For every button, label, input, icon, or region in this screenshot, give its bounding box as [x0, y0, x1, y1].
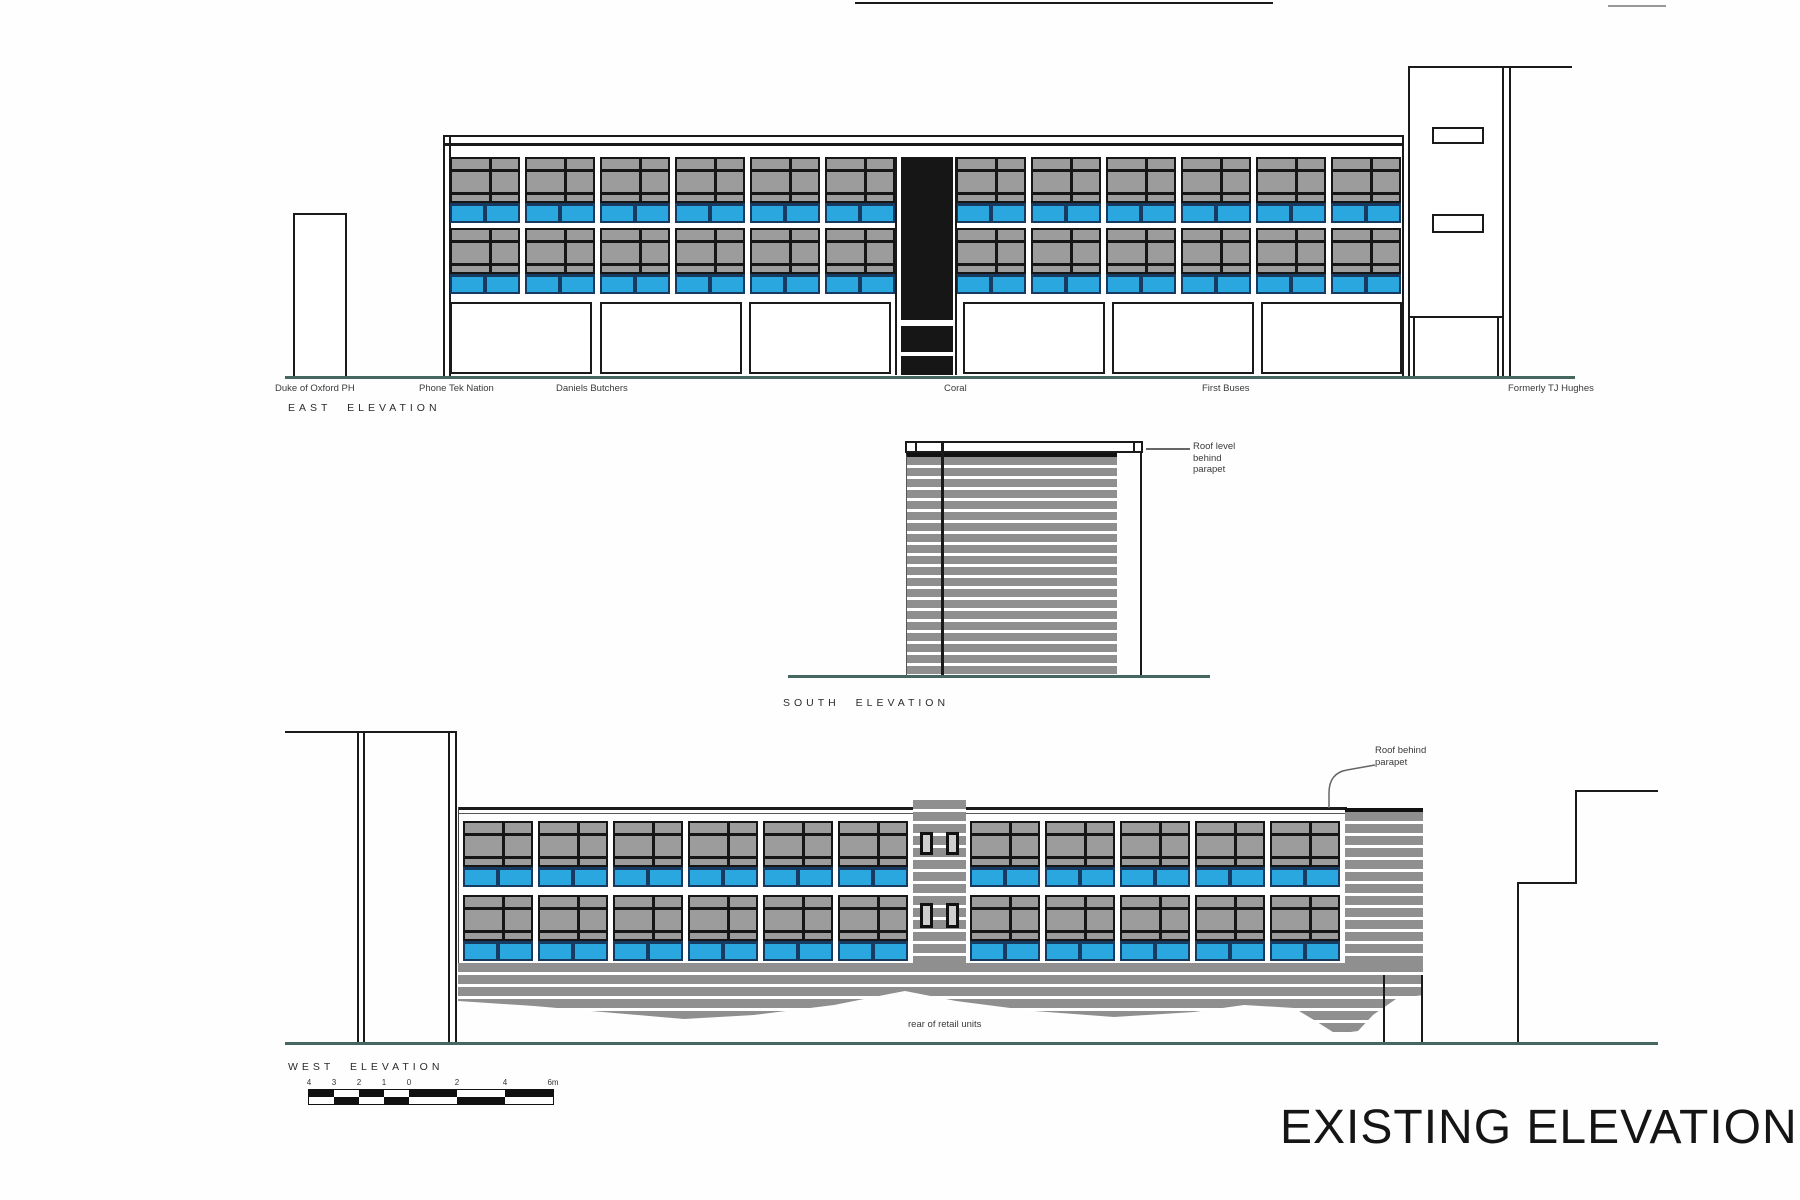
spandrel-pane: [677, 277, 708, 292]
glazing-pane: [840, 859, 877, 865]
east-facade: [443, 135, 1404, 377]
window-bay: [463, 821, 533, 887]
glazing-pane: [1162, 910, 1188, 930]
glazing-pane: [1162, 933, 1188, 939]
glazing-pane: [527, 243, 564, 263]
spandrel-panel-pair: [688, 941, 758, 961]
glazing-pane: [765, 823, 802, 833]
spandrel-panel-pair: [763, 867, 833, 887]
spandrel-pane: [958, 277, 989, 292]
glazing-pane: [920, 191, 934, 220]
glazing-pane: [1312, 823, 1338, 833]
glazing-pane: [1148, 172, 1174, 192]
glazing-pane: [1108, 159, 1145, 169]
glazing-pane: [752, 266, 789, 272]
spandrel-pane: [1307, 870, 1338, 885]
glazing-pane: [752, 243, 789, 263]
scale-bar-segment: [309, 1097, 334, 1104]
window-bay: [688, 821, 758, 887]
tower-base-edge: [1497, 316, 1499, 376]
shopfront-bay: [963, 302, 1105, 374]
glazing-pane: [1237, 823, 1263, 833]
window-bay: [970, 821, 1040, 887]
coping-end-tick: [1133, 443, 1135, 451]
spandrel-pane: [602, 206, 633, 221]
glazing-pane: [717, 159, 743, 169]
glazing-pane: [1237, 933, 1263, 939]
glazing-pane: [1237, 836, 1263, 856]
glazing-pane: [642, 230, 668, 240]
glazing-pane: [690, 823, 727, 833]
window-bay: [763, 895, 833, 961]
spandrel-panel-pair: [463, 867, 533, 887]
spandrel-pane: [840, 944, 871, 959]
west-parapet-inner-line: [458, 813, 1345, 814]
glazing-pane: [1298, 243, 1324, 263]
glazing-pane: [1087, 910, 1113, 930]
glazing-pane: [1012, 910, 1038, 930]
spandrel-pane: [800, 944, 831, 959]
spandrel-pane: [765, 944, 796, 959]
glazing-pane: [1183, 159, 1220, 169]
spandrel-pane: [765, 870, 796, 885]
window-glazing: [825, 228, 895, 274]
glazing-pane: [717, 195, 743, 201]
glazing-pane: [1073, 243, 1099, 263]
glazing-pane: [937, 224, 951, 253]
west-left-wall-line: [448, 731, 450, 1042]
spandrel-pane: [958, 206, 989, 221]
glazing-pane: [1373, 172, 1399, 192]
sheet-edge-artifact: [855, 2, 1273, 4]
glazing-pane: [840, 933, 877, 939]
window-bay: [463, 895, 533, 961]
spandrel-pane: [1183, 277, 1214, 292]
east-lower-window-row-right: [956, 228, 1401, 294]
glazing-pane: [765, 897, 802, 907]
glazing-pane: [677, 172, 714, 192]
glazing-pane: [1258, 243, 1295, 263]
glazing-pane: [1122, 859, 1159, 865]
scale-bar-tick-label: 2: [357, 1078, 361, 1087]
window-glazing: [825, 157, 895, 203]
spandrel-pane: [827, 206, 858, 221]
glazing-pane: [1237, 897, 1263, 907]
glazing-pane: [805, 933, 831, 939]
spandrel-pane: [1143, 277, 1174, 292]
spandrel-panel-pair: [838, 941, 908, 961]
window-glazing: [1045, 821, 1115, 867]
window-bay: [1181, 228, 1251, 294]
spandrel-pane: [1258, 277, 1289, 292]
spandrel-pane: [527, 277, 558, 292]
glazing-pane: [998, 230, 1024, 240]
glazing-pane: [1033, 266, 1070, 272]
spandrel-pane: [862, 206, 893, 221]
west-upper-window-row-left: [463, 821, 908, 887]
window-bay: [750, 228, 820, 294]
tower-base-edge: [1413, 316, 1415, 376]
window-bay: [1270, 895, 1340, 961]
window-bay: [613, 821, 683, 887]
window-glazing: [613, 821, 683, 867]
scale-bar-segment: [359, 1097, 384, 1104]
glazing-pane: [655, 910, 681, 930]
glazing-pane: [1162, 897, 1188, 907]
spandrel-panel-pair: [1270, 867, 1340, 887]
glazing-pane: [1087, 859, 1113, 865]
glazing-pane: [602, 159, 639, 169]
glazing-pane: [505, 897, 531, 907]
spandrel-panel-pair: [1120, 941, 1190, 961]
glazing-pane: [1272, 897, 1309, 907]
glazing-pane: [840, 836, 877, 856]
spandrel-pane: [1068, 277, 1099, 292]
glazing-pane: [867, 230, 893, 240]
glazing-pane: [792, 195, 818, 201]
louvre-tower-support-line: [1421, 975, 1423, 1043]
window-glazing: [538, 821, 608, 867]
glazing-pane: [958, 159, 995, 169]
glazing-pane: [1033, 159, 1070, 169]
glazing-pane: [920, 159, 934, 188]
window-bay: [525, 157, 595, 223]
glazing-pane: [1047, 823, 1084, 833]
glazing-pane: [677, 195, 714, 201]
glazing-pane: [1108, 243, 1145, 263]
glazing-pane: [1298, 195, 1324, 201]
glazing-pane: [1108, 266, 1145, 272]
spandrel-pane: [862, 277, 893, 292]
scale-bar-segment: [409, 1097, 457, 1104]
door-pane: [903, 328, 917, 373]
south-annotation: Roof level behind parapet: [1193, 441, 1263, 476]
east-unit-label: First Buses: [1202, 383, 1250, 394]
tj-hughes-tower: [1408, 66, 1504, 378]
window-bay: [450, 228, 520, 294]
spandrel-pane: [452, 206, 483, 221]
glazing-pane: [602, 195, 639, 201]
window-glazing: [675, 228, 745, 274]
glazing-pane: [615, 859, 652, 865]
glazing-pane: [567, 243, 593, 263]
glazing-pane: [642, 159, 668, 169]
glazing-pane: [527, 230, 564, 240]
glazing-pane: [880, 823, 906, 833]
glazing-pane: [730, 910, 756, 930]
spandrel-pane: [650, 944, 681, 959]
west-left-wall-line: [363, 731, 365, 1042]
spandrel-pane: [972, 944, 1003, 959]
window-bay: [838, 895, 908, 961]
glazing-pane: [1333, 159, 1370, 169]
window-glazing: [1331, 157, 1401, 203]
glazing-pane: [1108, 172, 1145, 192]
spandrel-pane: [1082, 944, 1113, 959]
glazing-pane: [1047, 897, 1084, 907]
spandrel-pane: [1007, 870, 1038, 885]
scale-bar-tick-label: 3: [332, 1078, 336, 1087]
spandrel-panel-pair: [1045, 867, 1115, 887]
glazing-pane: [903, 256, 917, 285]
east-parapet-line: [445, 143, 1402, 146]
spandrel-pane: [1218, 206, 1249, 221]
glazing-pane: [580, 836, 606, 856]
glazing-pane: [1333, 195, 1370, 201]
glazing-pane: [1258, 230, 1295, 240]
glazing-pane: [1272, 836, 1309, 856]
glazing-pane: [1373, 159, 1399, 169]
glazing-pane: [527, 172, 564, 192]
glazing-pane: [527, 159, 564, 169]
spandrel-pane: [993, 277, 1024, 292]
adjacent-building-outline-east-left: [293, 213, 347, 377]
core-window: [946, 903, 959, 928]
glazing-pane: [642, 266, 668, 272]
spandrel-pane: [800, 870, 831, 885]
glazing-pane: [1148, 266, 1174, 272]
door-transom-line: [901, 352, 953, 356]
glazing-pane: [1272, 859, 1309, 865]
spandrel-pane: [1307, 944, 1338, 959]
glazing-pane: [1183, 195, 1220, 201]
glazing-pane: [867, 159, 893, 169]
south-corner-line: [941, 441, 944, 676]
window-bay: [970, 895, 1040, 961]
glazing-pane: [1312, 859, 1338, 865]
glazing-pane: [1183, 230, 1220, 240]
window-bay: [1195, 895, 1265, 961]
shopfront-bay: [600, 302, 742, 374]
spandrel-pane: [1122, 944, 1153, 959]
glazing-pane: [972, 933, 1009, 939]
window-bay: [956, 157, 1026, 223]
spandrel-pane: [875, 944, 906, 959]
window-glazing: [970, 895, 1040, 941]
spandrel-pane: [1143, 206, 1174, 221]
glazing-pane: [752, 230, 789, 240]
glazing-pane: [677, 243, 714, 263]
spandrel-panel-pair: [1256, 274, 1326, 294]
scale-bar: 43210246m: [308, 1089, 554, 1105]
glazing-pane: [972, 836, 1009, 856]
glazing-pane: [1087, 933, 1113, 939]
glazing-pane: [937, 256, 951, 285]
spandrel-pane: [1368, 277, 1399, 292]
glazing-pane: [752, 195, 789, 201]
window-bay: [450, 157, 520, 223]
glazing-pane: [880, 910, 906, 930]
glazing-pane: [920, 224, 934, 253]
spandrel-panel-pair: [450, 274, 520, 294]
scale-bar-segment: [334, 1090, 359, 1097]
glazing-pane: [1272, 823, 1309, 833]
spandrel-panel-pair: [450, 203, 520, 223]
glazing-pane: [880, 897, 906, 907]
window-glazing: [1031, 228, 1101, 274]
spandrel-panel-pair: [1106, 274, 1176, 294]
glazing-pane: [972, 859, 1009, 865]
glazing-pane: [1373, 243, 1399, 263]
spandrel-pane: [1258, 206, 1289, 221]
glazing-pane: [717, 172, 743, 192]
spandrel-panel-pair: [538, 867, 608, 887]
glazing-pane: [655, 897, 681, 907]
window-glazing: [1181, 228, 1251, 274]
glazing-pane: [690, 897, 727, 907]
spandrel-pane: [487, 277, 518, 292]
west-facade-edge-line: [458, 807, 459, 963]
glazing-pane: [1162, 859, 1188, 865]
window-glazing: [688, 895, 758, 941]
window-glazing: [675, 157, 745, 203]
glazing-pane: [690, 836, 727, 856]
spandrel-panel-pair: [600, 203, 670, 223]
glazing-pane: [465, 823, 502, 833]
west-lower-window-row-left: [463, 895, 908, 961]
glazing-pane: [998, 195, 1024, 201]
tower-right-wall-line: [1509, 66, 1511, 378]
door-pane: [920, 328, 934, 373]
west-lower-window-row-right: [970, 895, 1340, 961]
glazing-pane: [452, 266, 489, 272]
spandrel-pane: [1232, 870, 1263, 885]
east-ground-line: [285, 376, 1575, 379]
window-bay: [688, 895, 758, 961]
south-ground-line: [788, 675, 1210, 678]
glazing-pane: [465, 910, 502, 930]
glazing-pane: [1258, 172, 1295, 192]
glazing-pane: [1122, 897, 1159, 907]
west-stair-core: [913, 800, 966, 965]
scale-bar-tick-label: 0: [407, 1078, 411, 1087]
sheet-edge-artifact: [1608, 5, 1666, 7]
spandrel-pane: [972, 870, 1003, 885]
glazing-pane: [903, 224, 917, 253]
glazing-pane: [1047, 910, 1084, 930]
glazing-pane: [840, 910, 877, 930]
glazing-pane: [1122, 836, 1159, 856]
scale-bar-segment: [384, 1097, 409, 1104]
glazing-pane: [937, 159, 951, 188]
spandrel-pane: [827, 277, 858, 292]
tower-roofline: [1504, 66, 1572, 68]
scale-bar-tick-label: 1: [382, 1078, 386, 1087]
window-glazing: [956, 157, 1026, 203]
glazing-pane: [1258, 266, 1295, 272]
glazing-pane: [792, 159, 818, 169]
glazing-pane: [765, 859, 802, 865]
glazing-pane: [730, 836, 756, 856]
glazing-pane: [1373, 266, 1399, 272]
glazing-pane: [880, 933, 906, 939]
glazing-pane: [1148, 243, 1174, 263]
scale-bar-tick-label: 4: [307, 1078, 311, 1087]
glazing-pane: [1162, 836, 1188, 856]
glazing-pane: [867, 195, 893, 201]
glazing-pane: [1073, 266, 1099, 272]
glazing-pane: [642, 172, 668, 192]
glazing-pane: [580, 823, 606, 833]
spandrel-panel-pair: [1256, 203, 1326, 223]
glazing-pane: [567, 195, 593, 201]
glazing-pane: [958, 230, 995, 240]
glazing-pane: [655, 823, 681, 833]
spandrel-pane: [602, 277, 633, 292]
glazing-pane: [840, 897, 877, 907]
spandrel-pane: [677, 206, 708, 221]
glazing-pane: [937, 191, 951, 220]
spandrel-panel-pair: [1106, 203, 1176, 223]
glazing-pane: [580, 859, 606, 865]
west-upper-window-row-right: [970, 821, 1340, 887]
window-glazing: [1045, 895, 1115, 941]
spandrel-pane: [1272, 870, 1303, 885]
glazing-pane: [998, 266, 1024, 272]
spandrel-panel-pair: [825, 274, 895, 294]
spandrel-pane: [1333, 206, 1364, 221]
glazing-pane: [1012, 897, 1038, 907]
spandrel-panel-pair: [538, 941, 608, 961]
glazing-pane: [1047, 933, 1084, 939]
glazing-pane: [1047, 859, 1084, 865]
window-bay: [1031, 228, 1101, 294]
glazing-pane: [998, 159, 1024, 169]
glazing-pane: [752, 159, 789, 169]
glazing-pane: [615, 910, 652, 930]
spandrel-pane: [465, 870, 496, 885]
scale-bar-segment: [334, 1097, 359, 1104]
spandrel-panel-pair: [1031, 203, 1101, 223]
window-bay: [825, 228, 895, 294]
window-bay: [1331, 157, 1401, 223]
glazing-pane: [765, 836, 802, 856]
spandrel-pane: [725, 870, 756, 885]
window-glazing: [838, 895, 908, 941]
glazing-pane: [1333, 230, 1370, 240]
glazing-pane: [792, 266, 818, 272]
window-bay: [825, 157, 895, 223]
window-glazing: [1270, 895, 1340, 941]
glazing-pane: [505, 859, 531, 865]
glazing-pane: [690, 859, 727, 865]
glazing-pane: [730, 933, 756, 939]
window-bay: [1256, 228, 1326, 294]
glazing-pane: [958, 243, 995, 263]
glazing-pane: [1272, 910, 1309, 930]
window-bay: [1106, 228, 1176, 294]
glazing-pane: [1223, 159, 1249, 169]
glazing-pane: [1197, 859, 1234, 865]
spandrel-pane: [1157, 944, 1188, 959]
glazing-pane: [465, 859, 502, 865]
window-glazing: [750, 157, 820, 203]
glazing-pane: [1073, 230, 1099, 240]
window-glazing: [1106, 157, 1176, 203]
glazing-pane: [1012, 823, 1038, 833]
east-elevation-label: EAST ELEVATION: [288, 402, 441, 414]
window-bay: [538, 895, 608, 961]
glazing-pane: [1073, 195, 1099, 201]
glazing-pane: [1012, 933, 1038, 939]
glazing-pane: [690, 933, 727, 939]
spandrel-pane: [752, 206, 783, 221]
glazing-pane: [1333, 243, 1370, 263]
window-bay: [956, 228, 1026, 294]
spandrel-pane: [615, 870, 646, 885]
south-annotation-leader: [1146, 448, 1190, 450]
spandrel-panel-pair: [688, 867, 758, 887]
